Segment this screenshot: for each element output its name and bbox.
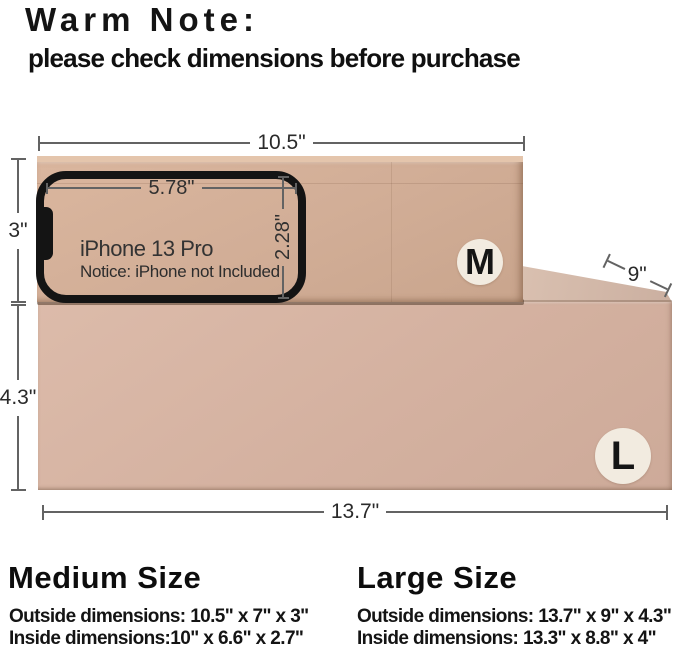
dim-medium-height: 3" (8, 158, 28, 303)
dim-tick (295, 183, 297, 194)
dim-line (17, 249, 19, 302)
dim-line (649, 280, 667, 290)
phone-notch (42, 207, 53, 260)
phone-notice-label: Notice: iPhone not Included (80, 262, 280, 282)
dim-large-width: 13.7" (42, 502, 668, 522)
large-size-sticker: L (595, 428, 651, 484)
dim-tick (11, 301, 26, 303)
dim-line (48, 187, 141, 189)
phone-model-label: iPhone 13 Pro (80, 236, 213, 262)
product-dimension-diagram: Warm Note: please check dimensions befor… (0, 0, 679, 648)
medium-inside-dimensions: Inside dimensions:10" x 6.6" x 2.7" (9, 628, 303, 648)
dim-phone-height-label: 2.28" (272, 209, 295, 265)
dim-line (282, 178, 284, 209)
dim-tick (523, 136, 525, 151)
dim-phone-width: 5.78" (46, 178, 297, 198)
medium-box-crease-vertical (391, 162, 392, 302)
dim-medium-height-label: 3" (8, 213, 27, 249)
medium-outside-dimensions: Outside dimensions: 10.5" x 7" x 3" (9, 606, 309, 628)
large-outside-dimensions: Outside dimensions: 13.7" x 9" x 4.3" (357, 606, 671, 628)
dim-line (17, 416, 19, 490)
large-inside-dimensions: Inside dimensions: 13.3" x 8.8" x 4" (357, 628, 656, 648)
large-size-heading: Large Size (357, 560, 517, 596)
dim-line (40, 142, 250, 144)
medium-size-sticker: M (457, 239, 503, 285)
dim-medium-width-label: 10.5" (250, 131, 312, 155)
page-title: Warm Note: (25, 1, 259, 39)
dim-large-height-label: 4.3" (0, 380, 36, 416)
dim-line (17, 160, 19, 213)
dim-large-width-label: 13.7" (324, 500, 386, 524)
dim-line (313, 142, 523, 144)
large-box-front-face (38, 302, 672, 490)
page-subtitle: please check dimensions before purchase (28, 43, 520, 74)
dim-tick (11, 489, 26, 491)
dim-line (282, 266, 284, 297)
large-box-top-edge (522, 300, 672, 302)
medium-size-heading: Medium Size (8, 560, 201, 596)
dim-tick (278, 297, 289, 299)
dim-line (17, 306, 19, 380)
dim-tick (666, 505, 668, 520)
dim-large-height: 4.3" (8, 304, 28, 491)
dim-line (44, 511, 324, 513)
dim-phone-width-label: 5.78" (141, 177, 201, 200)
dim-line (386, 511, 666, 513)
dim-large-depth-label: 9" (624, 263, 651, 287)
dim-medium-width: 10.5" (38, 133, 525, 153)
